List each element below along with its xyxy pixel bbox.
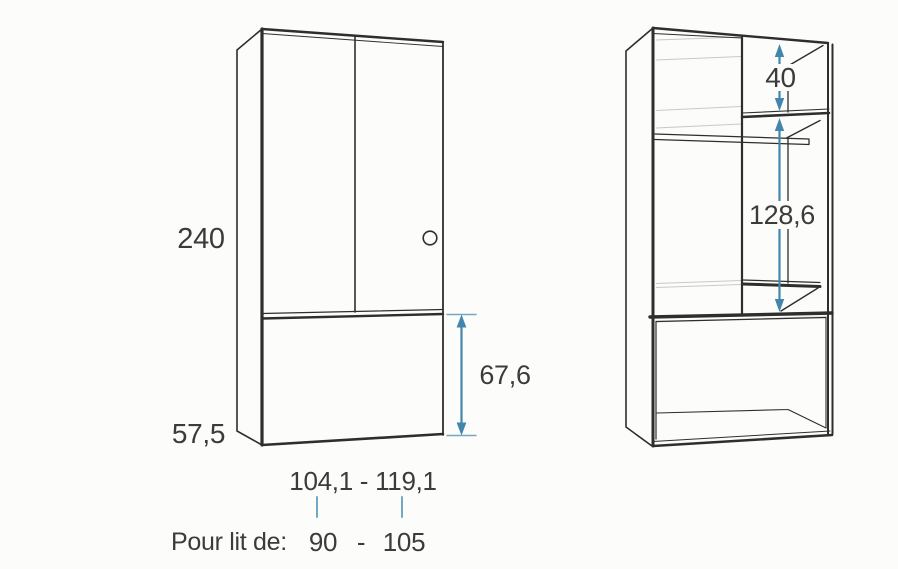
front-view-drawing <box>237 29 443 445</box>
caption-prefix: Pour lit de: <box>171 528 287 557</box>
front-width-range-label: 104,1 - 119,1 <box>286 466 440 497</box>
hanging-rod <box>655 134 809 145</box>
bed-panel-top-line <box>262 314 443 319</box>
caption-separator: - <box>352 527 370 558</box>
shelf-under-diagonal <box>787 121 821 139</box>
caption-min-width: 90 <box>303 527 343 558</box>
bottom-edge <box>262 434 443 445</box>
box-top-edge <box>650 313 832 317</box>
lower-shelf-diagonal <box>781 288 818 311</box>
arrowhead-down-icon <box>457 423 467 436</box>
arrowhead-down-icon <box>775 98 784 111</box>
interior-height-label: 128,6 <box>746 201 818 229</box>
front-panel-height-label: 67,6 <box>477 360 533 391</box>
shelf-front-line <box>742 113 829 117</box>
side-panel <box>626 28 653 446</box>
arrowhead-up-icon <box>775 44 784 57</box>
lower-shelf-front-line <box>743 284 820 287</box>
seethrough-shelf-lines <box>656 37 741 288</box>
front-base-height-label: 57,5 <box>171 418 226 450</box>
dimension-front-panel-height <box>447 315 476 436</box>
arrowhead-up-icon <box>775 118 784 131</box>
width-leader-ticks <box>317 497 402 517</box>
interior-view-drawing <box>626 28 833 446</box>
dimension-diagram: 240 57,5 67,6 104,1 - 119,1 40 128,6 Pou… <box>0 0 898 569</box>
door-bottom-line <box>262 310 443 314</box>
box-floor-edges <box>657 410 826 429</box>
top-edge <box>653 28 828 43</box>
lower-shelf-top-line <box>743 280 820 283</box>
caption-max-width: 105 <box>378 527 430 558</box>
side-panel <box>237 29 262 445</box>
box-inner-top <box>656 318 826 322</box>
arrowhead-up-icon <box>457 315 467 328</box>
interior-top-compartment-label: 40 <box>761 64 800 91</box>
front-total-height-label: 240 <box>176 223 226 256</box>
door-handle <box>423 231 437 245</box>
